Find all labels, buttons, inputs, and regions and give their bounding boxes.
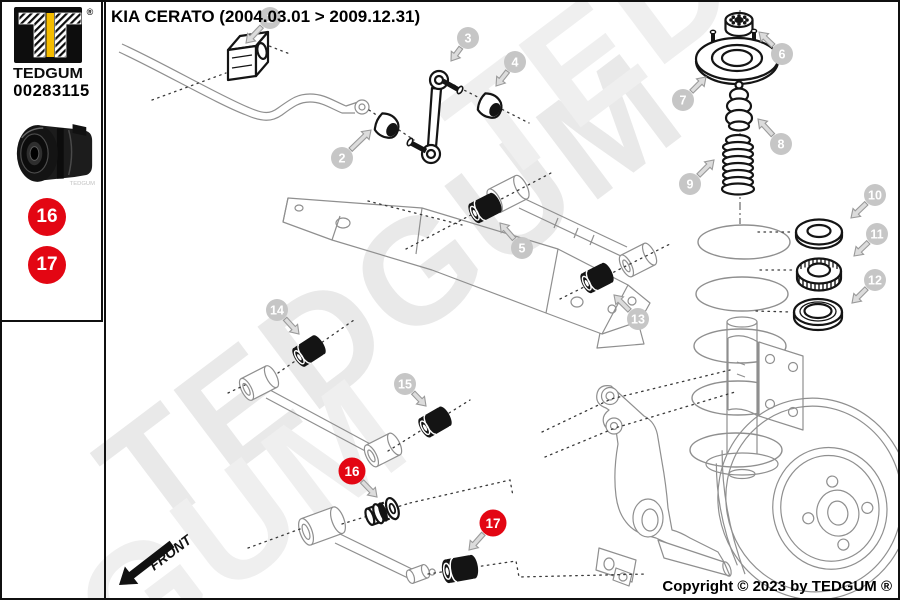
callout-number: 10 — [868, 188, 882, 202]
bump-stop — [726, 82, 752, 131]
part-number: 00283115 — [2, 82, 101, 101]
callout-2: 2 — [331, 130, 371, 169]
brand-wordmark: TEDGUM — [13, 65, 83, 82]
callout-number: 11 — [870, 227, 883, 241]
dust-boot — [722, 135, 754, 195]
parts-catalog-page: ® TEDGUM 00283115 TEDGUM 16 17 KIA CERAT… — [0, 0, 900, 600]
tedgum-logo: ® TEDGUM — [4, 4, 100, 82]
callout-number: 15 — [398, 377, 412, 391]
callout-number: 8 — [778, 137, 785, 151]
strut-bracket — [728, 336, 803, 430]
spring-seat-bearing — [797, 259, 841, 291]
callout-17: 17 — [469, 510, 507, 551]
callout-number: 9 — [687, 177, 694, 191]
callout-11: 11 — [854, 223, 888, 256]
sidebar-panel: ® TEDGUM 00283115 TEDGUM 16 17 — [2, 2, 103, 322]
main-frame-border — [104, 2, 106, 598]
highlight-badge-16: 16 — [28, 198, 66, 236]
copyright-notice: Copyright © 2023 by TEDGUM ® — [662, 578, 892, 595]
callout-12: 12 — [852, 269, 886, 303]
product-photo: TEDGUM — [10, 116, 98, 190]
callout-number: 13 — [631, 312, 645, 326]
trailing-arm-bushing-17 — [440, 554, 480, 584]
callout-10: 10 — [851, 184, 886, 218]
callout-number: 16 — [344, 464, 360, 479]
callout-arrow-icon — [469, 532, 485, 550]
logo-yellow-stripe — [47, 13, 55, 57]
callout-number: 4 — [512, 55, 519, 69]
callout-number: 6 — [779, 47, 786, 61]
knuckle — [596, 386, 733, 586]
spring-seat-upper — [796, 220, 842, 249]
callout-8: 8 — [758, 119, 792, 155]
link-bushing-2 — [372, 111, 403, 142]
callout-arrow-icon — [852, 287, 868, 303]
callout-number: 17 — [485, 516, 500, 531]
rod-bushing-15 — [416, 404, 455, 439]
callout-arrow-icon — [412, 391, 426, 406]
callout-number: 12 — [868, 273, 882, 287]
callout-number: 3 — [465, 31, 472, 45]
callout-arrow-icon — [758, 119, 775, 137]
callout-number: 7 — [680, 93, 687, 107]
callout-15: 15 — [394, 373, 426, 406]
callout-number: 2 — [339, 151, 346, 165]
callout-number: 5 — [519, 241, 526, 255]
callout-arrow-icon — [349, 130, 371, 151]
watermark-layer: TEDGUM TEDGUM TEDGUM — [2, 2, 900, 600]
callout-number: 14 — [270, 303, 284, 317]
photo-watermark: TEDGUM — [70, 181, 96, 187]
callout-arrow-icon — [851, 202, 868, 218]
spring-seat-lower — [794, 299, 842, 330]
callout-arrow-icon — [854, 241, 870, 256]
suspension-exploded-diagram: TEDGUM TEDGUM TEDGUM — [2, 2, 900, 600]
strut-bearing — [726, 13, 753, 36]
registered-trademark: ® — [87, 7, 94, 17]
page-title: KIA CERATO (2004.03.01 > 2009.12.31) — [111, 7, 420, 27]
highlight-badge-17: 17 — [28, 246, 66, 284]
